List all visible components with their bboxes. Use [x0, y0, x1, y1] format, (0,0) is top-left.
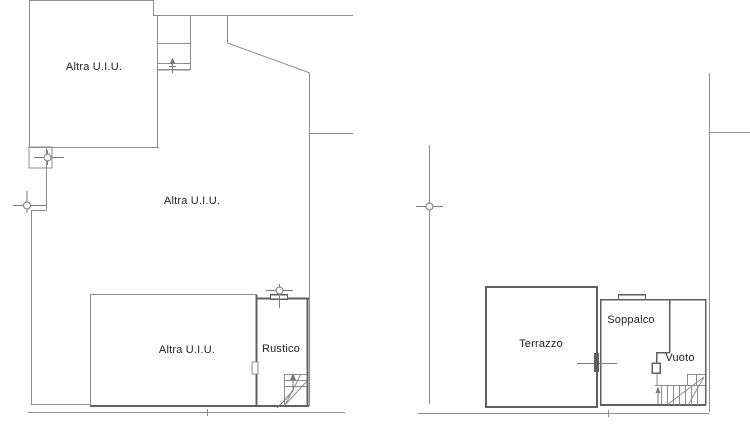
door-jamb: [652, 363, 660, 373]
axis-marker-circle: [24, 202, 31, 209]
floor-plan-canvas: Altra U.I.U. Altra U.I.U. Altra U.I.U. R…: [0, 0, 750, 425]
shaft-arrow-head: [170, 58, 176, 65]
diagonal-wall: [228, 43, 311, 73]
room-label-vuoto: Vuoto: [665, 352, 694, 364]
stair-arrow-head: [656, 387, 661, 394]
room-label-rustico: Rustico: [262, 343, 300, 355]
room-label-terrazzo: Terrazzo: [519, 338, 563, 350]
room-label-soppalco: Soppalco: [607, 314, 654, 326]
room-label-altra-uiu-middle: Altra U.I.U.: [164, 195, 220, 207]
room-label-altra-uiu-lower: Altra U.I.U.: [159, 344, 215, 356]
door-jamb: [252, 362, 258, 374]
axis-marker-circle: [44, 154, 51, 161]
axis-marker-circle: [276, 287, 283, 294]
wall-marker-block: [594, 353, 599, 372]
room-label-altra-uiu-upper: Altra U.I.U.: [66, 61, 122, 73]
axis-marker-circle: [426, 203, 433, 210]
